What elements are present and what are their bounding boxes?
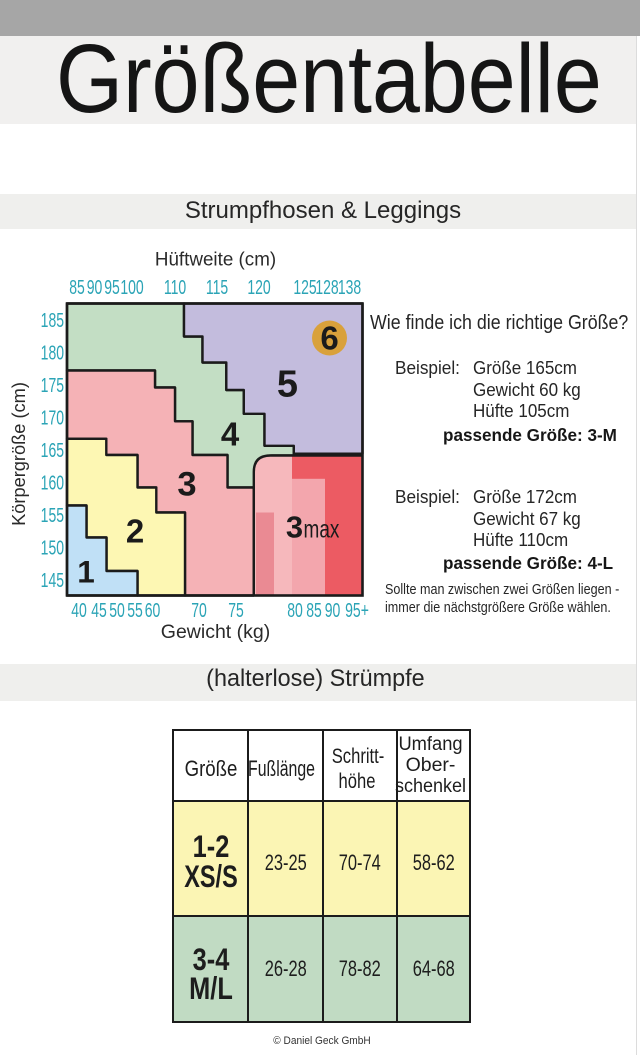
svg-text:Körpergröße (cm): Körpergröße (cm) bbox=[8, 382, 29, 526]
svg-text:95: 95 bbox=[104, 275, 120, 298]
svg-text:Gewicht (kg): Gewicht (kg) bbox=[161, 621, 270, 643]
svg-text:75: 75 bbox=[228, 598, 244, 621]
svg-text:6: 6 bbox=[320, 320, 338, 357]
svg-text:3: 3 bbox=[177, 466, 196, 504]
svg-text:max: max bbox=[304, 515, 340, 543]
svg-text:Hüftweite (cm): Hüftweite (cm) bbox=[155, 249, 276, 270]
svg-text:120: 120 bbox=[247, 275, 270, 298]
svg-text:50: 50 bbox=[109, 598, 125, 621]
svg-text:115: 115 bbox=[206, 275, 228, 298]
svg-text:90: 90 bbox=[325, 598, 341, 621]
svg-text:80: 80 bbox=[287, 598, 303, 621]
svg-text:160: 160 bbox=[41, 471, 64, 494]
svg-text:4: 4 bbox=[221, 416, 240, 453]
svg-text:55: 55 bbox=[127, 598, 143, 621]
svg-text:5: 5 bbox=[277, 364, 298, 406]
svg-text:95+: 95+ bbox=[345, 598, 369, 621]
svg-text:180: 180 bbox=[41, 341, 64, 364]
svg-text:165: 165 bbox=[41, 438, 64, 461]
svg-text:110: 110 bbox=[164, 275, 186, 298]
svg-text:175: 175 bbox=[41, 373, 64, 396]
svg-text:3: 3 bbox=[286, 510, 303, 545]
svg-text:45: 45 bbox=[91, 598, 107, 621]
svg-text:40: 40 bbox=[71, 598, 87, 621]
svg-text:2: 2 bbox=[126, 513, 144, 550]
svg-text:138: 138 bbox=[338, 275, 361, 298]
svg-text:128: 128 bbox=[315, 275, 338, 298]
svg-text:155: 155 bbox=[41, 503, 64, 526]
svg-text:90: 90 bbox=[87, 275, 103, 298]
svg-text:60: 60 bbox=[145, 598, 161, 621]
svg-text:85: 85 bbox=[69, 275, 85, 298]
svg-text:100: 100 bbox=[120, 275, 143, 298]
svg-text:70: 70 bbox=[191, 598, 207, 621]
svg-text:185: 185 bbox=[41, 308, 64, 331]
svg-text:85: 85 bbox=[306, 598, 322, 621]
svg-text:145: 145 bbox=[41, 568, 64, 591]
svg-text:170: 170 bbox=[41, 406, 64, 429]
svg-text:150: 150 bbox=[41, 536, 64, 559]
svg-text:1: 1 bbox=[77, 554, 95, 590]
svg-text:125: 125 bbox=[293, 275, 316, 298]
